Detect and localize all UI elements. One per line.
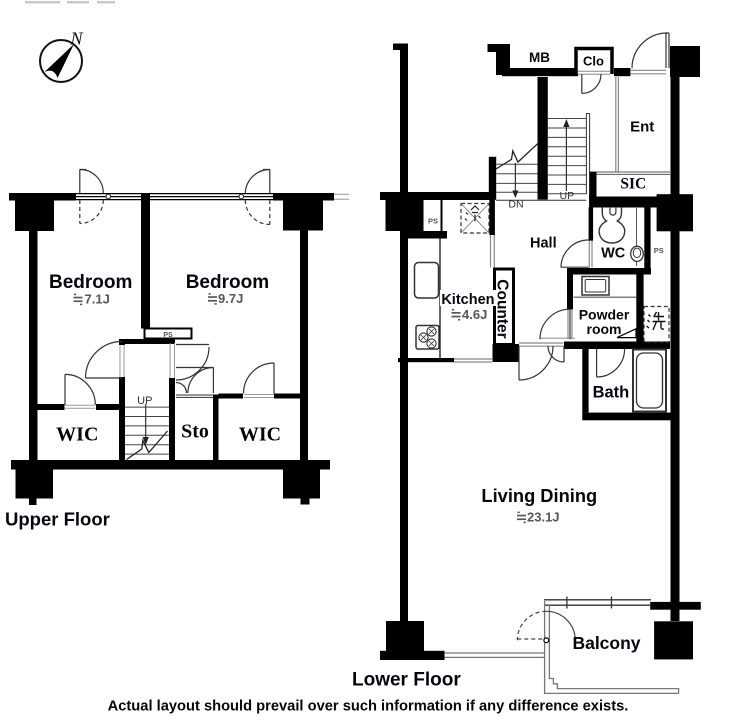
svg-text:Sto: Sto bbox=[181, 421, 209, 443]
svg-text:23.1J: 23.1J bbox=[527, 510, 560, 525]
svg-text:DN: DN bbox=[508, 199, 523, 211]
svg-text:Kitchen: Kitchen bbox=[441, 292, 494, 308]
svg-text:Upper Floor: Upper Floor bbox=[5, 509, 110, 530]
svg-text:Clo: Clo bbox=[583, 54, 604, 69]
svg-text:PS: PS bbox=[654, 246, 664, 255]
svg-text:WC: WC bbox=[601, 246, 626, 262]
svg-text:Bedroom: Bedroom bbox=[49, 272, 132, 293]
svg-text:Counter: Counter bbox=[494, 279, 511, 338]
svg-text:UP: UP bbox=[560, 190, 575, 202]
svg-text:Balcony: Balcony bbox=[572, 633, 640, 653]
svg-text:room: room bbox=[587, 321, 622, 337]
svg-text:9.7J: 9.7J bbox=[218, 291, 243, 306]
svg-text:WIC: WIC bbox=[56, 424, 98, 446]
svg-text:7.1J: 7.1J bbox=[85, 292, 110, 307]
svg-text:4.6J: 4.6J bbox=[462, 307, 487, 322]
svg-text:SIC: SIC bbox=[620, 176, 646, 193]
svg-text:N: N bbox=[70, 29, 84, 49]
svg-text:Hall: Hall bbox=[530, 236, 557, 252]
svg-text:WIC: WIC bbox=[239, 424, 281, 446]
svg-text:Bath: Bath bbox=[593, 384, 630, 402]
svg-text:Lower Floor: Lower Floor bbox=[352, 670, 461, 691]
svg-text:Actual layout should prevail o: Actual layout should prevail over such i… bbox=[108, 699, 629, 715]
svg-text:Bedroom: Bedroom bbox=[186, 272, 269, 293]
svg-text:Living Dining: Living Dining bbox=[481, 485, 597, 506]
svg-text:Ent: Ent bbox=[630, 119, 654, 136]
svg-text:PS: PS bbox=[428, 217, 438, 226]
svg-text:UP: UP bbox=[137, 395, 152, 407]
svg-text:PS: PS bbox=[163, 332, 173, 339]
svg-text:MB: MB bbox=[529, 50, 550, 65]
